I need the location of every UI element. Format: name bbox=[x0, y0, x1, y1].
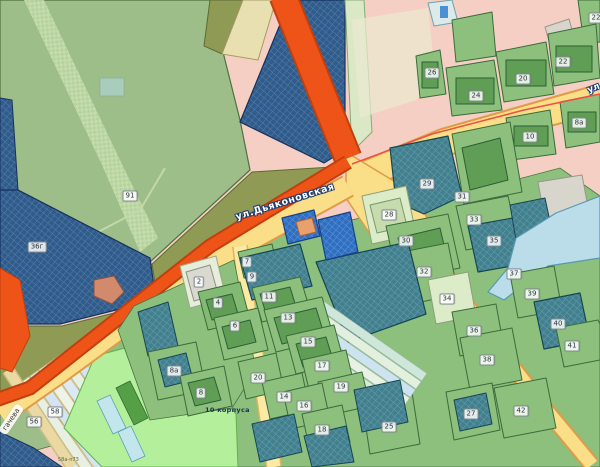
parcel-label: 35 bbox=[487, 236, 502, 247]
parcel-label: 9 bbox=[247, 272, 257, 283]
parcel-label: 39 bbox=[525, 289, 540, 300]
parcel-label: 8 bbox=[196, 388, 206, 399]
parcel-label: 25 bbox=[382, 422, 397, 433]
parcel-label: 37 bbox=[507, 269, 522, 280]
parcel-label: 41 bbox=[565, 341, 580, 352]
parcel-label: 16 bbox=[297, 401, 312, 412]
parcel-label: 38 bbox=[480, 355, 495, 366]
parcel-label: 33 bbox=[467, 215, 482, 226]
parcel-label: 20 bbox=[516, 74, 531, 85]
parcel-label: 11 bbox=[262, 292, 277, 303]
parcel-label: 34 bbox=[440, 294, 455, 305]
parcel-label: 28 bbox=[382, 210, 397, 221]
parcel-label: 26 bbox=[425, 68, 440, 79]
map-canvas[interactable]: ул.Дьяконовская ул.Дьяконовская гачева c… bbox=[0, 0, 600, 467]
parcel-label: 56 bbox=[27, 417, 42, 428]
parcel-label: 6 bbox=[230, 321, 240, 332]
parcel-label: 36г bbox=[28, 242, 47, 253]
parcel-label: 22 bbox=[556, 57, 571, 68]
map-annotation: 58а-п73 bbox=[58, 457, 79, 463]
parcel-label: 15 bbox=[301, 337, 316, 348]
map-annotation: 10 корпуса bbox=[205, 406, 250, 414]
parcel-label: 18 bbox=[315, 425, 330, 436]
parcel-label: 91 bbox=[123, 191, 138, 202]
parcel-label: 32 bbox=[417, 267, 432, 278]
parcel-label: 27 bbox=[464, 409, 479, 420]
map-layers bbox=[0, 0, 600, 467]
parcel-label: 22 bbox=[589, 13, 600, 24]
parcel-label: 30 bbox=[399, 236, 414, 247]
parcel-label: 31 bbox=[455, 192, 470, 203]
parcel-label: 14 bbox=[277, 392, 292, 403]
parcel-label: 24 bbox=[469, 91, 484, 102]
parcel-label: 19 bbox=[334, 382, 349, 393]
parcel-label: 58 bbox=[48, 407, 63, 418]
parcel-label: 20 bbox=[251, 373, 266, 384]
parcel-label: 36 bbox=[467, 326, 482, 337]
parcel-label: 40 bbox=[551, 319, 566, 330]
parcel-label: 2 bbox=[194, 277, 204, 288]
parcel-label: 42 bbox=[514, 406, 529, 417]
parcel-label: 10 bbox=[523, 132, 538, 143]
parcel-label: 13 bbox=[281, 313, 296, 324]
parcel-label: 17 bbox=[315, 361, 330, 372]
parcel-label: 4 bbox=[213, 298, 223, 309]
parcel-label: 8а bbox=[167, 366, 182, 377]
parcel-label: 7 bbox=[242, 257, 252, 268]
parcel-label: 29 bbox=[420, 179, 435, 190]
parcel-label: 8а bbox=[572, 118, 587, 129]
